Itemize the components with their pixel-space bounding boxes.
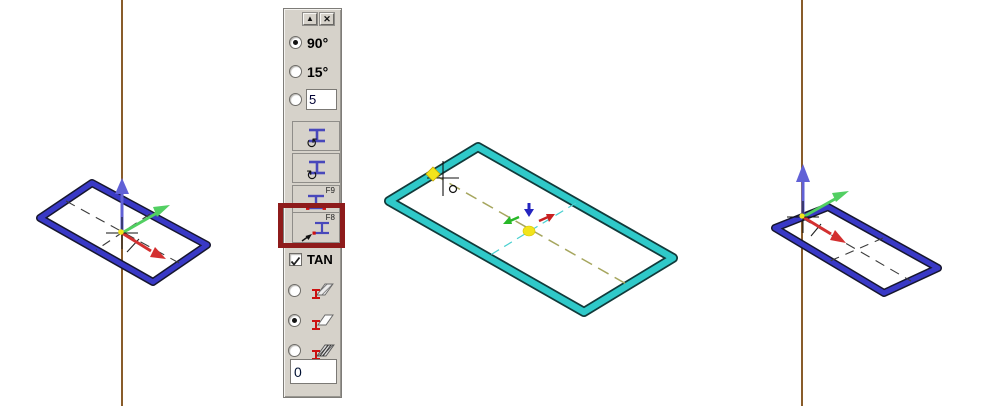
pick-point-circle xyxy=(450,186,457,193)
radio-angle-90[interactable] xyxy=(289,36,302,49)
tan-checkbox[interactable] xyxy=(289,253,302,266)
x-axis-arrow-right[interactable] xyxy=(803,217,831,234)
f9-flip-button[interactable]: F9 xyxy=(292,185,340,215)
radio-angle-15[interactable] xyxy=(289,65,302,78)
z-axis-arrowhead-left xyxy=(115,178,129,194)
rotate-cw-button[interactable]: ↻ xyxy=(292,153,340,183)
placement-option-outline xyxy=(288,309,340,333)
palette-rollup-button[interactable]: ▲ xyxy=(303,13,317,25)
rotate-cw-icon: ↻ xyxy=(306,167,318,184)
offset-value-input[interactable] xyxy=(290,359,337,384)
mini-z-arrowhead xyxy=(524,209,534,217)
sketch-rect-right[interactable] xyxy=(775,207,938,293)
palette-close-button[interactable]: ✕ xyxy=(320,13,334,25)
axis-triad-right[interactable] xyxy=(787,164,849,243)
y-axis-arrow-left[interactable] xyxy=(122,213,157,233)
cad-canvas[interactable] xyxy=(0,0,988,406)
x-axis-arrowhead-left xyxy=(150,247,166,259)
tan-label: TAN xyxy=(307,252,333,267)
rotation-tool-palette: ▲ ✕ 90° 15° ↺ ↻ xyxy=(283,8,342,398)
angle-90-label: 90° xyxy=(307,35,328,51)
origin-marker-left xyxy=(118,229,124,235)
rotate-ccw-button[interactable]: ↺ xyxy=(292,121,340,151)
beam-insertion-icon xyxy=(293,214,339,243)
radio-extrude-hatched[interactable] xyxy=(288,284,301,297)
radio-extrude-multi[interactable] xyxy=(288,344,301,357)
origin-marker-right xyxy=(799,213,804,218)
cad-viewport: ▲ ✕ 90° 15° ↺ ↻ xyxy=(0,0,988,406)
angle-15-label: 15° xyxy=(307,64,328,80)
mini-y-arrow xyxy=(510,217,519,221)
orientation-indicator-middle xyxy=(503,203,555,236)
close-icon: ✕ xyxy=(323,14,331,24)
f8-insertion-point-button[interactable]: F8 xyxy=(292,212,340,243)
radio-extrude-outline[interactable] xyxy=(288,314,301,327)
rollup-icon: ▲ xyxy=(306,14,314,23)
placement-option-hatched xyxy=(288,279,340,303)
extrude-hatched-icon xyxy=(309,279,336,303)
checkmark-icon xyxy=(290,256,301,267)
rotate-ccw-icon: ↺ xyxy=(306,135,318,152)
center-marker-middle xyxy=(523,226,535,236)
extrude-outline-icon xyxy=(309,309,336,333)
x-axis-arrowhead-right xyxy=(830,230,846,243)
x-axis-arrow-left[interactable] xyxy=(122,233,151,251)
beam-endpoints-icon xyxy=(293,187,339,215)
radio-angle-custom[interactable] xyxy=(289,93,302,106)
custom-angle-input[interactable] xyxy=(306,89,337,110)
z-axis-arrowhead-right xyxy=(796,164,810,182)
